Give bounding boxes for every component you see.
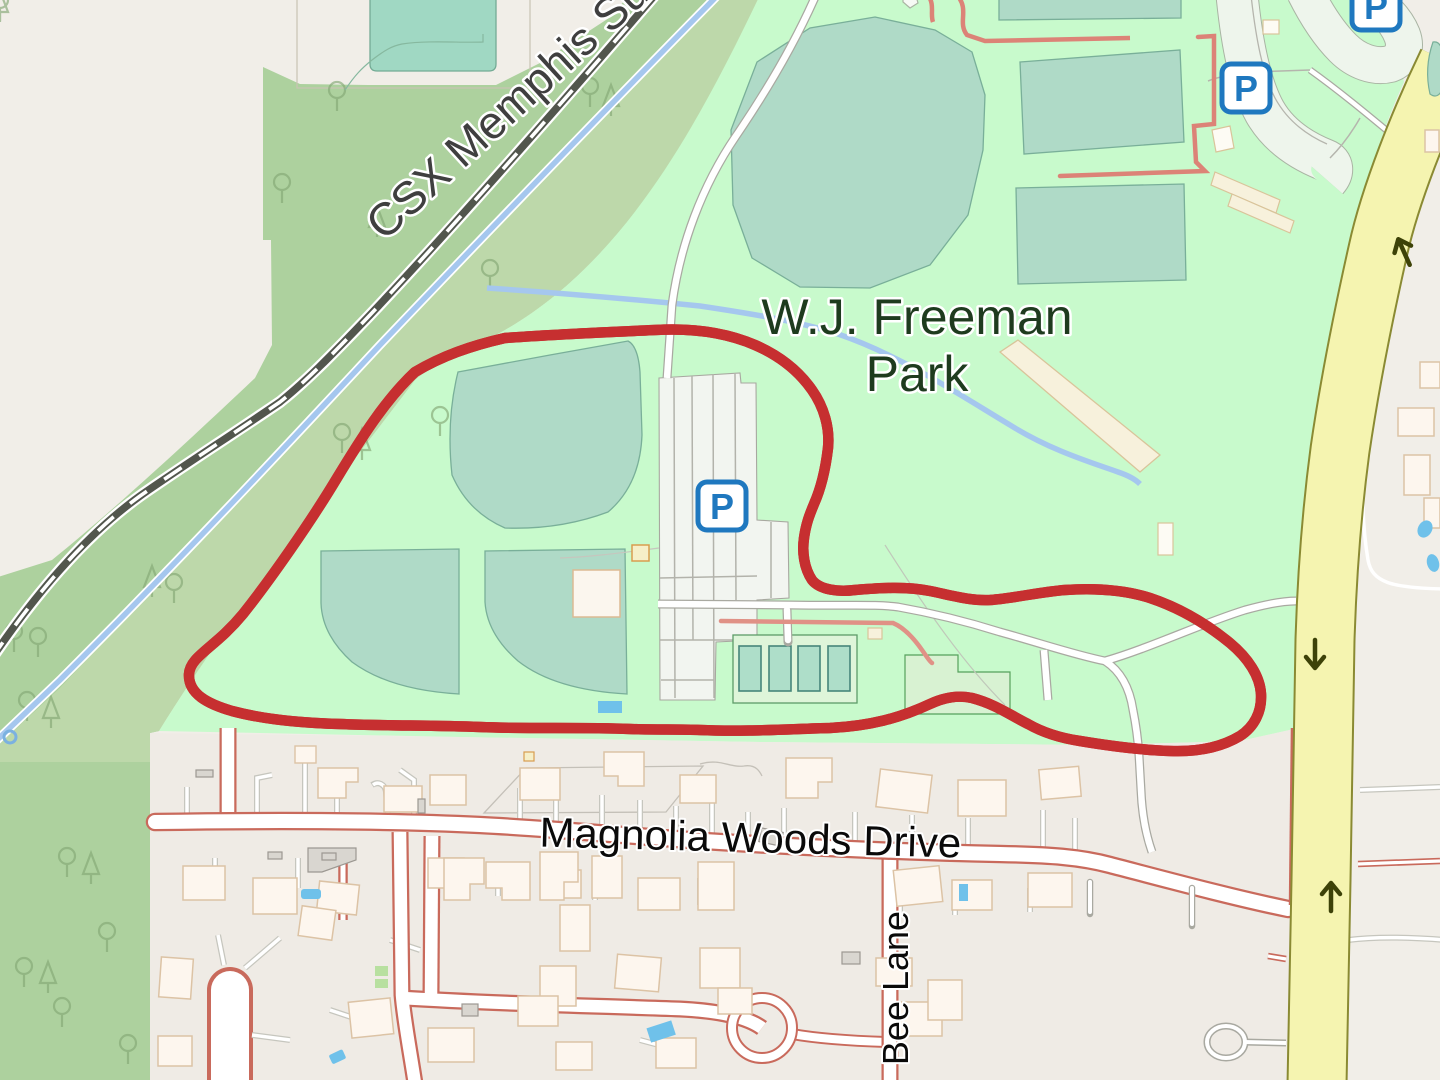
svg-text:P: P (1234, 68, 1258, 109)
svg-text:Park: Park (866, 346, 970, 402)
svg-text:W.J. Freeman: W.J. Freeman (761, 289, 1072, 345)
svg-text:P: P (710, 486, 734, 527)
svg-text:Bee Lane: Bee Lane (875, 911, 916, 1065)
svg-text:P: P (1364, 0, 1388, 27)
